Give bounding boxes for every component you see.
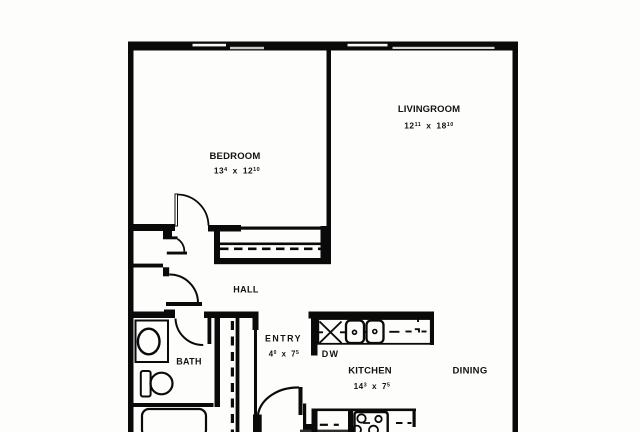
svg-text:ENTRY: ENTRY [265, 334, 302, 344]
svg-text:1211 x 1810: 1211 x 1810 [404, 121, 454, 131]
svg-text:KITCHEN: KITCHEN [348, 366, 392, 377]
svg-text:40 x 75: 40 x 75 [269, 350, 300, 359]
svg-text:BEDROOM: BEDROOM [209, 151, 260, 162]
svg-text:LIVINGROOM: LIVINGROOM [398, 104, 460, 115]
svg-text:HALL: HALL [233, 285, 259, 295]
svg-text:DW: DW [322, 349, 339, 359]
svg-text:143 x 75: 143 x 75 [354, 382, 391, 391]
svg-text:DINING: DINING [452, 366, 487, 377]
svg-text:BATH: BATH [176, 357, 202, 367]
